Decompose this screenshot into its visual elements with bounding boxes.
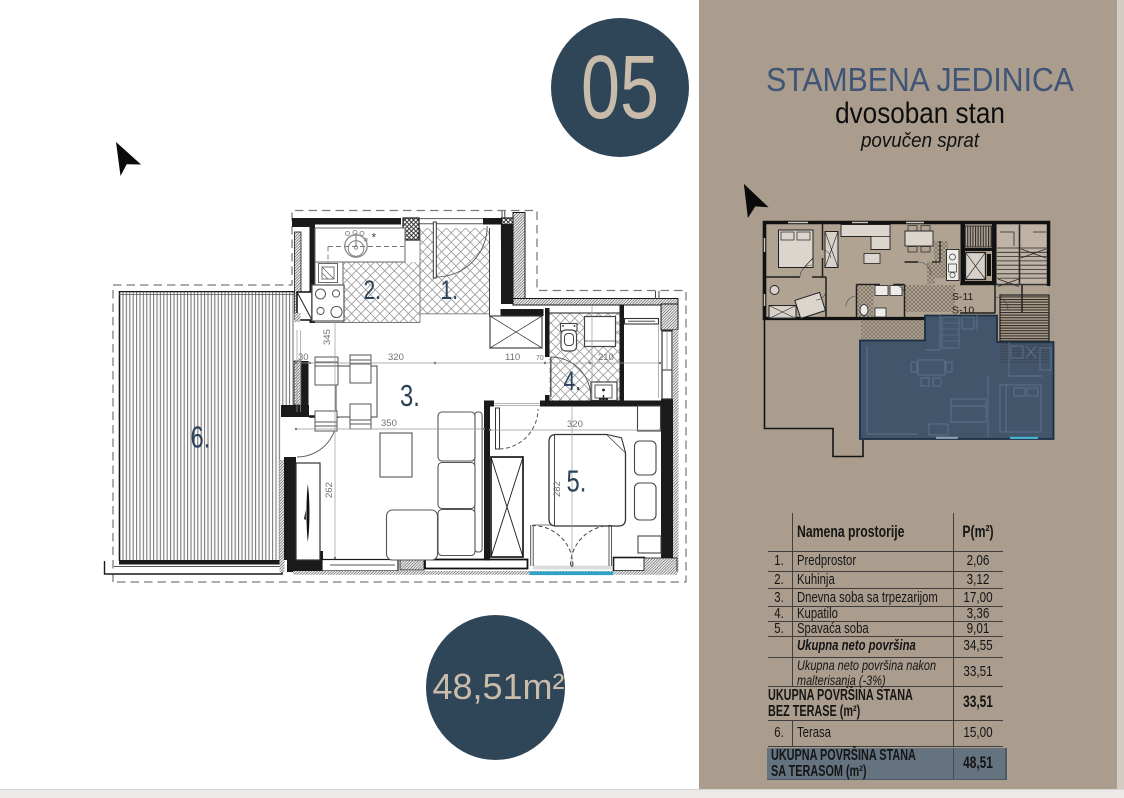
svg-text:30: 30 (298, 352, 309, 363)
svg-text:320: 320 (567, 419, 583, 430)
svg-text:2.: 2. (364, 276, 382, 306)
svg-text:S-10: S-10 (952, 305, 974, 317)
svg-text:5.: 5. (567, 464, 587, 499)
svg-text:6.: 6. (191, 420, 211, 455)
svg-text:3.: 3. (400, 378, 420, 413)
svg-text:70: 70 (536, 355, 544, 362)
svg-text:262: 262 (324, 482, 335, 498)
svg-text:282: 282 (552, 481, 563, 497)
svg-text:S-11: S-11 (952, 291, 974, 303)
svg-text:1.: 1. (441, 276, 459, 306)
svg-text:320: 320 (388, 352, 404, 363)
svg-text:110: 110 (505, 352, 520, 363)
svg-text:*: * (372, 231, 377, 245)
svg-text:4.: 4. (564, 367, 582, 397)
svg-text:350: 350 (381, 418, 397, 429)
svg-text:210: 210 (598, 352, 614, 363)
svg-text:345: 345 (322, 329, 333, 345)
